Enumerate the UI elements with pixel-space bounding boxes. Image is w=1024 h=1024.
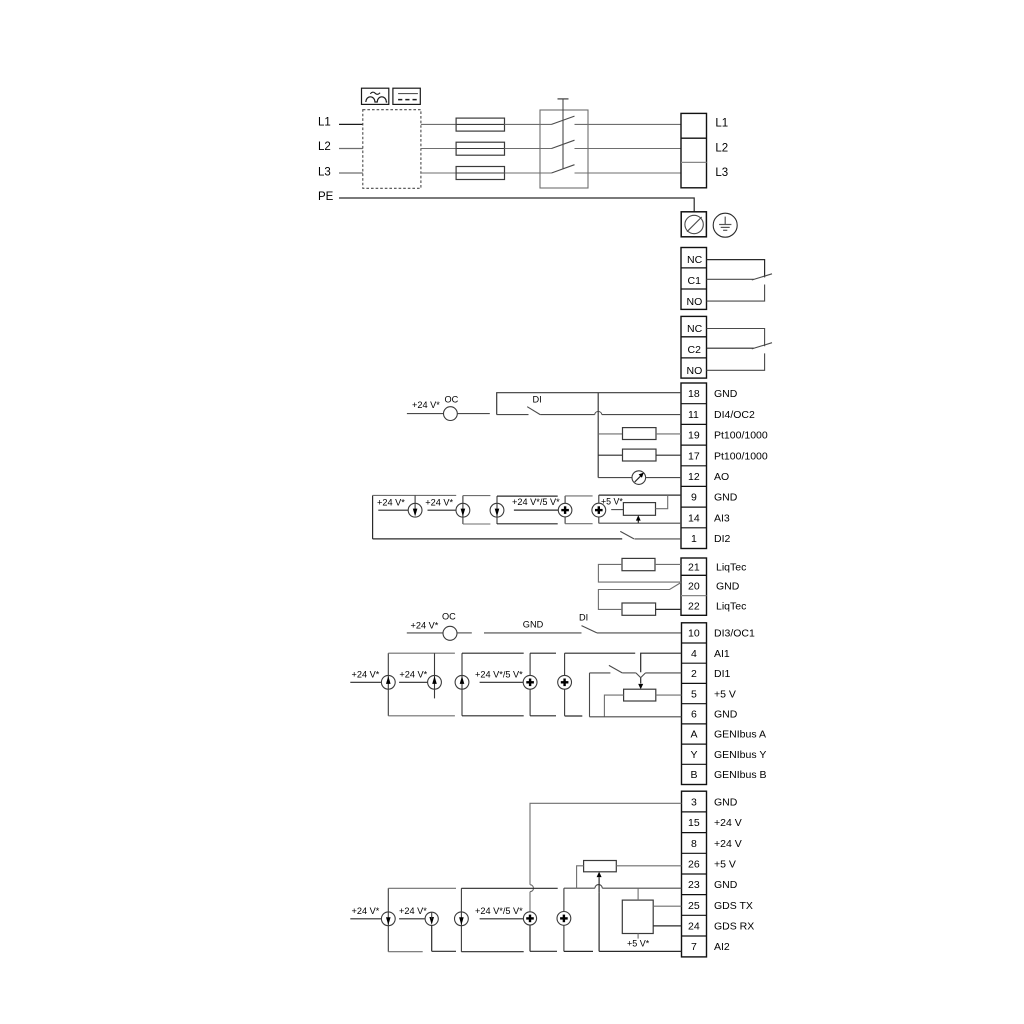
svg-text:GND: GND	[523, 619, 544, 629]
svg-text:+24 V*: +24 V*	[352, 906, 380, 916]
svg-text:24: 24	[688, 921, 700, 933]
svg-text:3: 3	[691, 796, 697, 808]
svg-text:GND: GND	[716, 581, 740, 593]
svg-text:DI: DI	[579, 612, 588, 622]
svg-text:PE: PE	[318, 191, 334, 203]
svg-text:+5 V: +5 V	[714, 688, 736, 700]
svg-text:GDS RX: GDS RX	[714, 921, 754, 933]
svg-text:B: B	[691, 769, 698, 781]
svg-text:AI1: AI1	[714, 648, 730, 660]
svg-text:GND: GND	[714, 796, 738, 808]
svg-text:18: 18	[688, 388, 700, 400]
svg-text:+24 V*: +24 V*	[412, 400, 440, 410]
svg-text:12: 12	[688, 471, 700, 483]
svg-text:23: 23	[688, 879, 700, 891]
svg-text:+24 V*: +24 V*	[352, 669, 380, 679]
svg-text:4: 4	[691, 648, 697, 660]
svg-text:+24 V*: +24 V*	[399, 669, 427, 679]
svg-text:11: 11	[688, 409, 699, 421]
svg-text:GDS TX: GDS TX	[714, 900, 753, 912]
svg-text:GENIbus Y: GENIbus Y	[714, 749, 766, 761]
svg-text:GND: GND	[714, 492, 738, 504]
svg-text:10: 10	[688, 628, 700, 640]
svg-text:A: A	[691, 729, 698, 741]
svg-text:+24 V*/5 V*: +24 V*/5 V*	[475, 906, 523, 916]
svg-text:L2: L2	[715, 143, 728, 155]
svg-text:L1: L1	[715, 118, 728, 130]
svg-text:5: 5	[691, 688, 697, 700]
svg-text:22: 22	[688, 600, 700, 612]
svg-text:+24 V*: +24 V*	[399, 906, 427, 916]
svg-text:AI3: AI3	[714, 512, 730, 524]
svg-text:DI1: DI1	[714, 668, 731, 680]
svg-text:GENIbus B: GENIbus B	[714, 769, 767, 781]
svg-text:19: 19	[688, 430, 700, 442]
svg-text:+24 V*: +24 V*	[377, 498, 405, 508]
svg-text:OC: OC	[442, 612, 456, 622]
svg-text:DI4/OC2: DI4/OC2	[714, 409, 755, 421]
svg-text:L1: L1	[318, 117, 331, 129]
svg-text:14: 14	[688, 512, 700, 524]
svg-text:7: 7	[691, 941, 697, 953]
svg-text:GENIbus A: GENIbus A	[714, 729, 766, 741]
svg-text:26: 26	[688, 859, 700, 871]
svg-text:2: 2	[691, 668, 697, 680]
svg-text:+24 V*: +24 V*	[425, 498, 453, 508]
svg-text:9: 9	[691, 492, 697, 504]
svg-text:6: 6	[691, 709, 697, 721]
svg-text:DI2: DI2	[714, 533, 731, 545]
svg-text:GND: GND	[714, 879, 738, 891]
svg-text:+24 V*/5 V*: +24 V*/5 V*	[512, 497, 560, 507]
svg-text:LiqTec: LiqTec	[716, 562, 746, 574]
svg-text:DI: DI	[533, 395, 542, 405]
svg-text:+24 V: +24 V	[714, 838, 742, 850]
svg-text:+5 V*: +5 V*	[601, 497, 623, 507]
svg-text:Pt100/1000: Pt100/1000	[714, 450, 768, 462]
svg-text:LiqTec: LiqTec	[716, 600, 746, 612]
svg-text:Pt100/1000: Pt100/1000	[714, 430, 768, 442]
svg-text:OC: OC	[445, 395, 459, 405]
svg-text:L3: L3	[715, 167, 728, 179]
svg-text:25: 25	[688, 900, 700, 912]
svg-text:NO: NO	[687, 296, 703, 308]
svg-text:+24 V: +24 V	[714, 817, 742, 829]
svg-text:15: 15	[688, 817, 700, 829]
svg-text:+5 V: +5 V	[714, 859, 736, 871]
svg-text:C1: C1	[688, 275, 702, 287]
svg-text:L2: L2	[318, 141, 331, 153]
svg-text:+24 V*/5 V*: +24 V*/5 V*	[475, 669, 523, 679]
svg-text:DI3/OC1: DI3/OC1	[714, 628, 755, 640]
svg-text:NC: NC	[687, 254, 703, 266]
svg-text:+24 V*: +24 V*	[411, 620, 439, 630]
svg-text:20: 20	[688, 581, 700, 593]
svg-text:AO: AO	[714, 471, 729, 483]
svg-text:+5 V*: +5 V*	[627, 938, 650, 948]
svg-text:21: 21	[688, 562, 700, 574]
svg-text:C2: C2	[688, 344, 702, 356]
svg-text:17: 17	[688, 450, 700, 462]
svg-text:NO: NO	[687, 365, 703, 377]
svg-text:GND: GND	[714, 388, 738, 400]
svg-text:NC: NC	[687, 323, 703, 335]
svg-text:L3: L3	[318, 167, 331, 179]
svg-text:Y: Y	[691, 749, 698, 761]
svg-text:GND: GND	[714, 709, 738, 721]
svg-text:1: 1	[691, 533, 697, 545]
svg-text:8: 8	[691, 838, 697, 850]
svg-text:AI2: AI2	[714, 941, 730, 953]
